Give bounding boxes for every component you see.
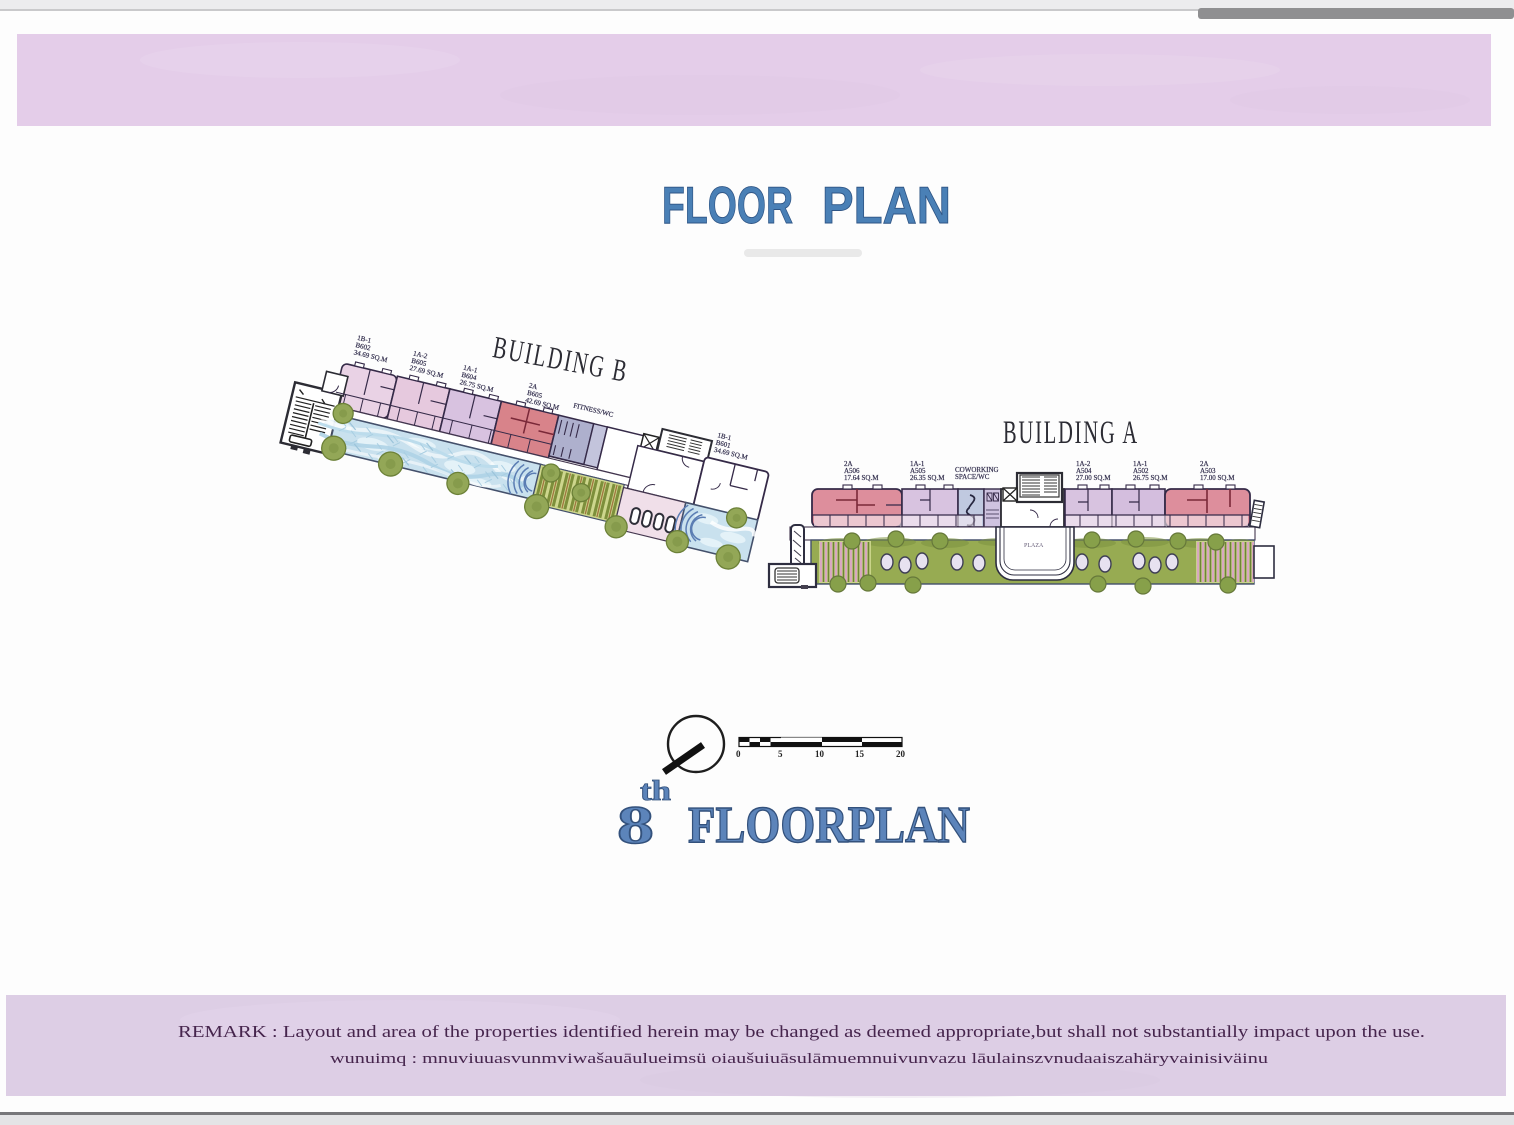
svg-text:0: 0 — [736, 749, 741, 759]
svg-text:th: th — [640, 776, 672, 807]
svg-text:FLOOR: FLOOR — [662, 177, 793, 235]
svg-text:10: 10 — [815, 749, 825, 759]
svg-text:PLAZA: PLAZA — [1024, 543, 1044, 549]
svg-text:5: 5 — [778, 749, 783, 759]
svg-text:20: 20 — [896, 749, 906, 759]
svg-text:PLAN: PLAN — [822, 177, 951, 235]
svg-text:wunuimq : mnuviuuasvunmviwašau: wunuimq : mnuviuuasvunmviwašauāulueimsü … — [330, 1051, 1269, 1067]
svg-text:FLOORPLAN: FLOORPLAN — [688, 797, 970, 854]
svg-text:15: 15 — [855, 749, 865, 759]
svg-text:BUILDING A: BUILDING A — [1003, 415, 1139, 451]
svg-text:REMARK : Layout and area of th: REMARK : Layout and area of the properti… — [178, 1022, 1425, 1041]
